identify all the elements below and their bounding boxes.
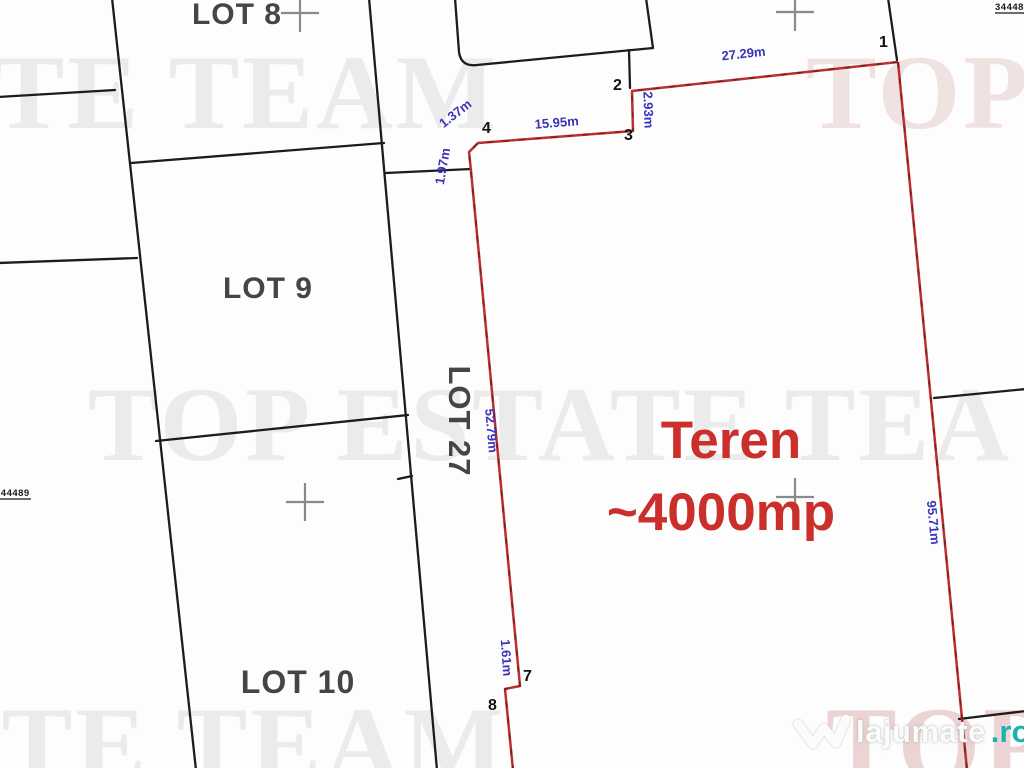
dimension-label: 1.37m	[436, 96, 474, 131]
dimension-label: 2.93m	[640, 91, 656, 128]
dimension-label: 27.29m	[721, 44, 766, 64]
boundary-lot9-lot10	[156, 415, 408, 441]
lajumate-logo-icon	[793, 712, 851, 752]
boundary-stub	[629, 50, 630, 88]
lot10-label: LOT 10	[241, 664, 355, 700]
lajumate-logo-tld: .ro	[991, 714, 1024, 750]
cadastral-plan-drawing: 1 2 3 4 7 8 27.29m 2.93m 15.95m 1.37m 1.…	[0, 0, 1024, 768]
point-number: 2	[613, 77, 622, 94]
boundary-lot27-west	[369, 0, 437, 768]
parcel-point-numbers: 1 2 3 4 7 8	[482, 34, 888, 714]
point-number: 3	[624, 127, 633, 144]
lajumate-logo: lajumate.ro	[793, 712, 1024, 752]
boundary-line-divider	[0, 90, 115, 97]
grid-cross-icon	[286, 483, 324, 521]
area-annotation-line2: ~4000mp	[607, 483, 835, 542]
dimension-label: 1.97m	[432, 147, 453, 186]
cadastral-reference-numbers: 344489 344489	[0, 2, 1024, 499]
lot8-label: LOT 8	[192, 0, 282, 31]
area-annotation: Teren ~4000mp	[607, 411, 835, 542]
boundary-stub	[386, 169, 471, 173]
point-number: 7	[523, 668, 532, 685]
point-number: 4	[482, 120, 491, 137]
cadastral-number: 344489	[0, 488, 30, 499]
lot27-label: LOT 27	[442, 365, 477, 476]
building-outline	[455, 0, 653, 65]
site-plan: ATE TEAM TOP TOP ESTATE TEA ATE TEAM TOP	[0, 0, 1024, 768]
dimension-label: 52.79m	[482, 408, 501, 453]
dimension-label: 95.71m	[924, 500, 943, 545]
lot-labels: LOT 8 LOT 9 LOT 10 LOT 27	[192, 0, 477, 700]
lajumate-logo-text: lajumate	[856, 714, 986, 750]
boundary-tick	[398, 476, 412, 479]
dimension-label: 1.61m	[498, 639, 516, 677]
grid-cross-icon	[776, 0, 814, 31]
boundary-branch-right	[934, 389, 1024, 398]
boundary-lot8-lot9	[131, 143, 384, 163]
area-annotation-line1: Teren	[661, 411, 801, 470]
dimension-label: 15.95m	[534, 113, 579, 131]
cadastral-number: 344489	[995, 2, 1024, 13]
dimension-labels: 27.29m 2.93m 15.95m 1.37m 1.97m 52.79m 1…	[432, 44, 943, 677]
boundary-line-left	[112, 0, 196, 768]
grid-cross-icon	[281, 0, 319, 32]
point-number: 1	[879, 34, 888, 51]
lot9-label: LOT 9	[223, 272, 313, 305]
boundary-line-divider	[0, 258, 137, 263]
point-number: 8	[488, 697, 497, 714]
boundary-line-topright	[888, 0, 897, 60]
